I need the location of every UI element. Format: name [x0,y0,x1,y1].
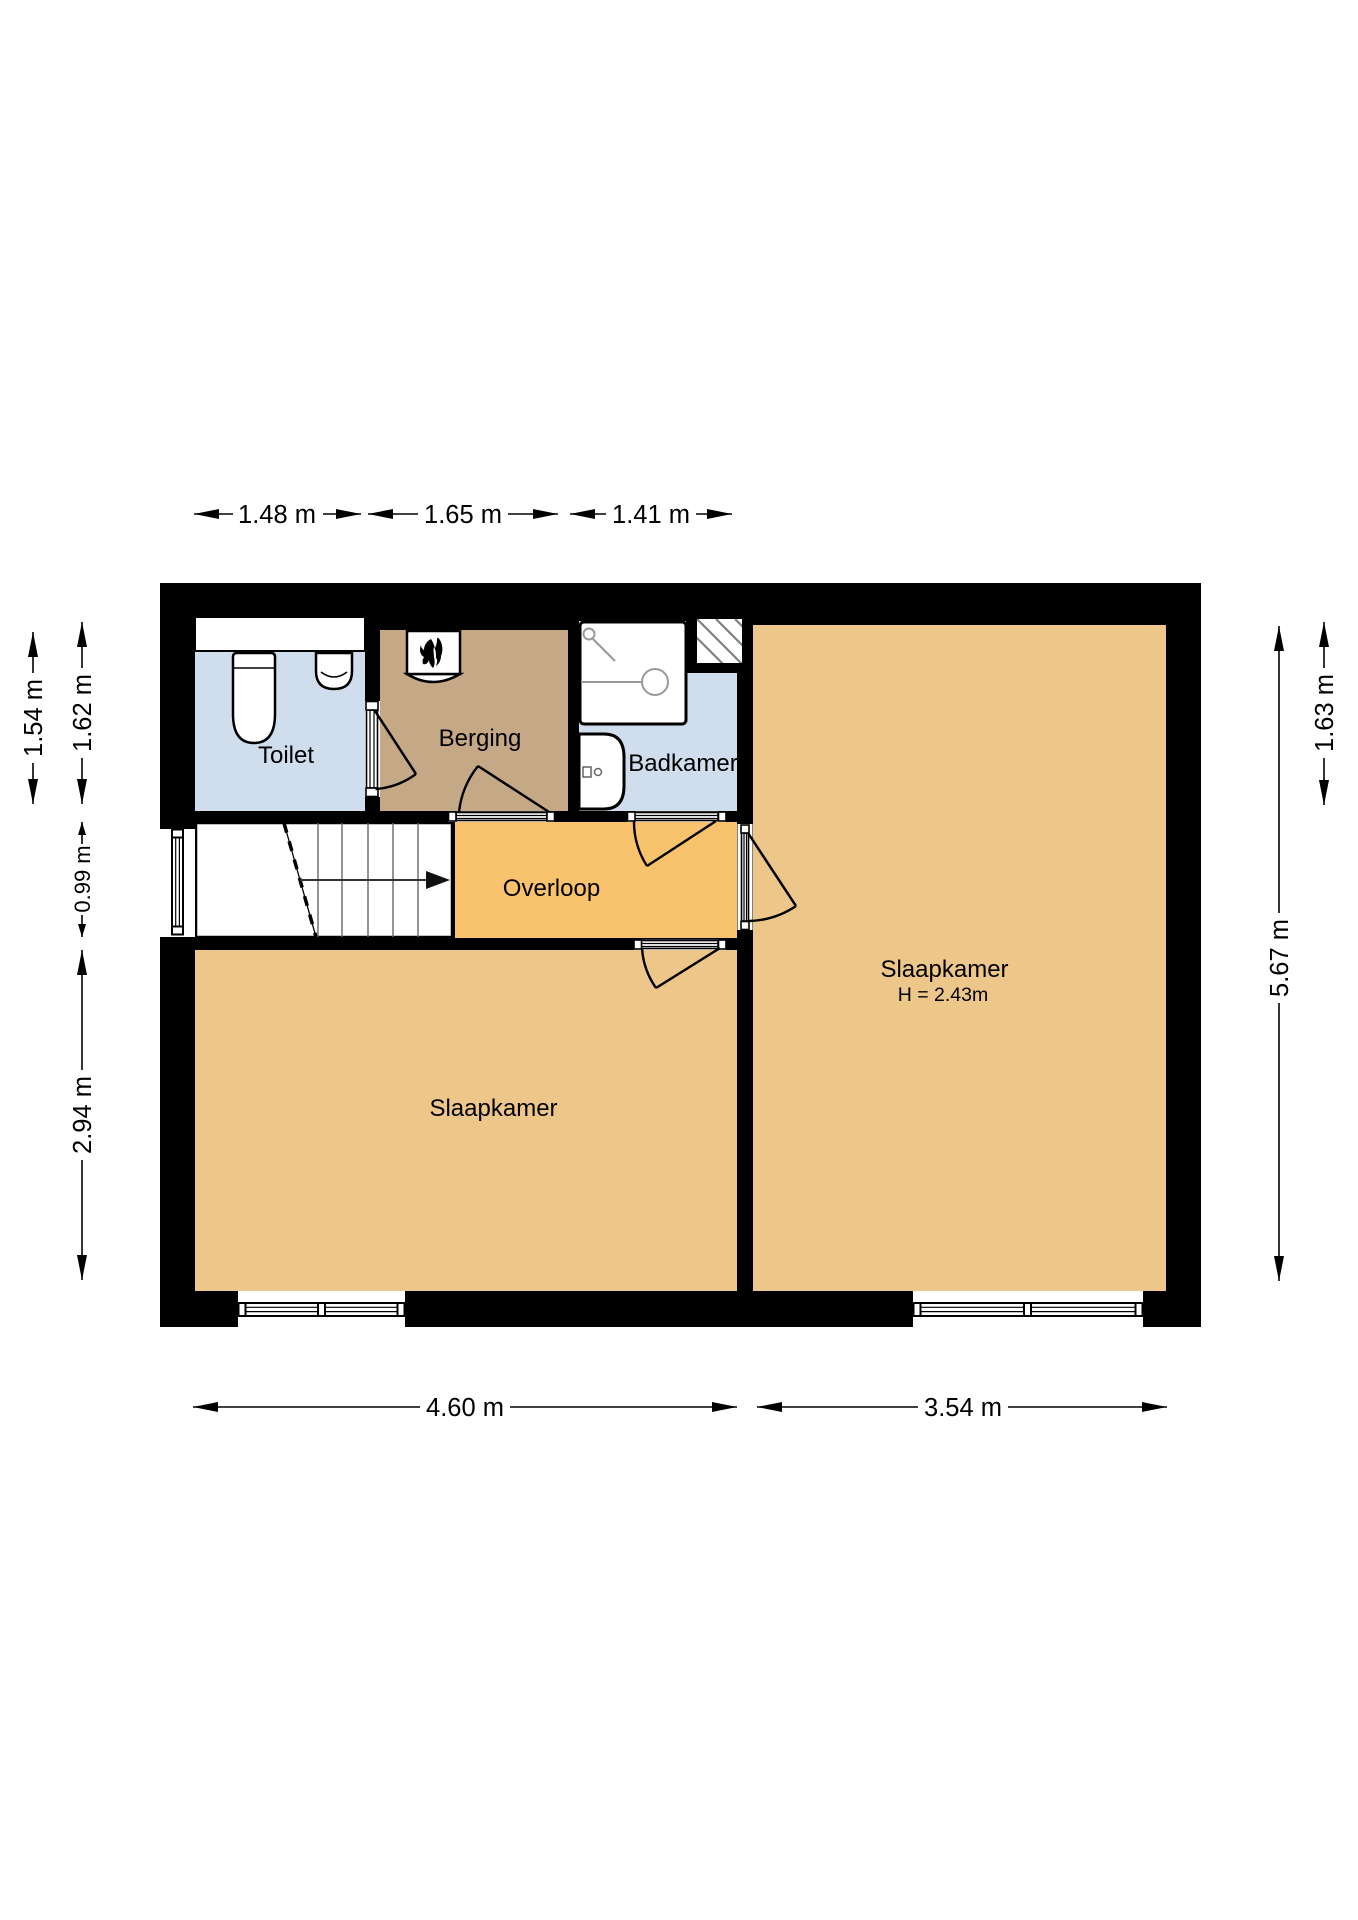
svg-text:Slaapkamer: Slaapkamer [429,1095,557,1122]
svg-text:Slaapkamer: Slaapkamer [880,956,1008,983]
svg-text:5.67 m: 5.67 m [1266,919,1294,997]
svg-text:1.48 m: 1.48 m [238,501,316,529]
svg-text:4.60 m: 4.60 m [426,1394,504,1422]
svg-text:Badkamer: Badkamer [628,750,737,777]
svg-text:1.41 m: 1.41 m [612,501,690,529]
svg-text:3.54 m: 3.54 m [924,1394,1002,1422]
svg-text:Overloop: Overloop [503,875,600,902]
svg-text:1.65 m: 1.65 m [424,501,502,529]
svg-text:1.54 m: 1.54 m [20,679,48,757]
svg-text:1.63 m: 1.63 m [1311,674,1339,752]
svg-text:2.94 m: 2.94 m [69,1076,97,1154]
svg-text:0.99 m: 0.99 m [70,845,95,912]
svg-text:1.62 m: 1.62 m [69,674,97,752]
svg-text:H = 2.43m: H = 2.43m [898,984,989,1006]
svg-text:Berging: Berging [439,725,522,752]
svg-text:Toilet: Toilet [258,742,314,769]
